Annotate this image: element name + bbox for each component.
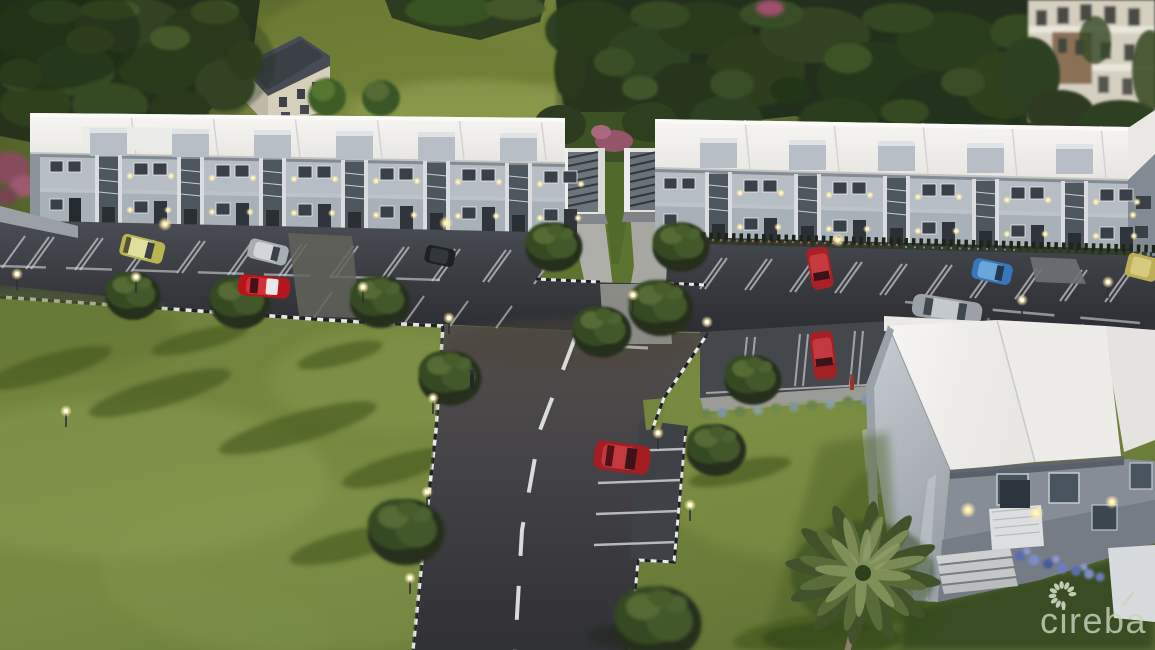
- svg-text:cireba: cireba: [1040, 600, 1147, 641]
